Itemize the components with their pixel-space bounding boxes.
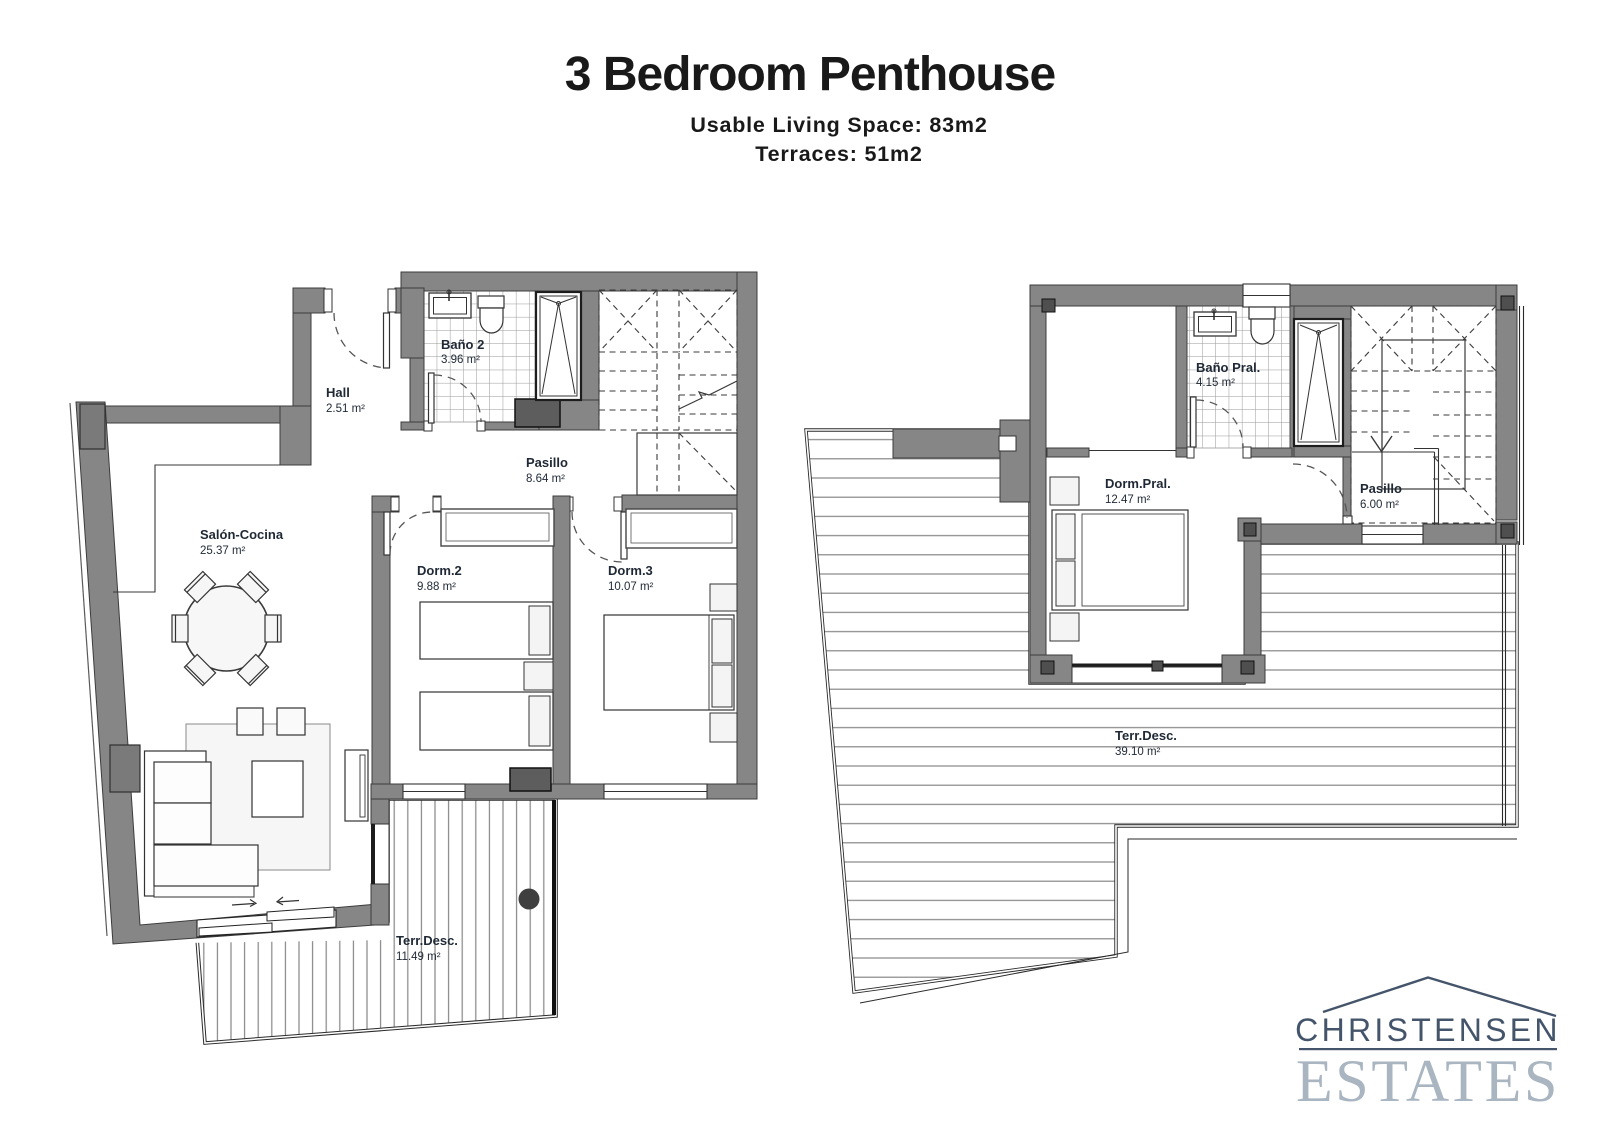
svg-text:CHRISTENSEN: CHRISTENSEN (1295, 1012, 1561, 1048)
svg-text:Baño Pral.: Baño Pral. (1196, 360, 1260, 375)
svg-text:Usable Living Space: 83m2: Usable Living Space: 83m2 (690, 113, 987, 137)
svg-text:3.96 m²: 3.96 m² (441, 354, 480, 366)
svg-text:Terr.Desc.: Terr.Desc. (396, 933, 458, 948)
svg-text:8.64 m²: 8.64 m² (526, 473, 565, 485)
svg-text:Terraces: 51m2: Terraces: 51m2 (755, 142, 922, 166)
svg-text:9.88 m²: 9.88 m² (417, 581, 456, 593)
svg-text:Pasillo: Pasillo (526, 455, 568, 470)
svg-text:Hall: Hall (326, 385, 350, 400)
svg-text:Dorm.3: Dorm.3 (608, 563, 653, 578)
svg-text:Dorm.Pral.: Dorm.Pral. (1105, 476, 1171, 491)
svg-text:Pasillo: Pasillo (1360, 481, 1402, 496)
svg-text:10.07 m²: 10.07 m² (608, 581, 654, 593)
svg-text:3 Bedroom Penthouse: 3 Bedroom Penthouse (565, 48, 1056, 101)
svg-text:Baño 2: Baño 2 (441, 337, 484, 352)
svg-text:4.15 m²: 4.15 m² (1196, 377, 1235, 389)
svg-text:39.10 m²: 39.10 m² (1115, 746, 1161, 758)
svg-text:Dorm.2: Dorm.2 (417, 563, 462, 578)
svg-text:ESTATES: ESTATES (1296, 1048, 1560, 1114)
svg-text:6.00 m²: 6.00 m² (1360, 499, 1399, 511)
svg-text:2.51 m²: 2.51 m² (326, 403, 365, 415)
svg-text:12.47 m²: 12.47 m² (1105, 494, 1151, 506)
svg-text:11.49 m²: 11.49 m² (396, 951, 441, 963)
svg-text:Terr.Desc.: Terr.Desc. (1115, 728, 1177, 743)
svg-text:25.37 m²: 25.37 m² (200, 545, 246, 557)
svg-text:Salón-Cocina: Salón-Cocina (200, 527, 284, 542)
